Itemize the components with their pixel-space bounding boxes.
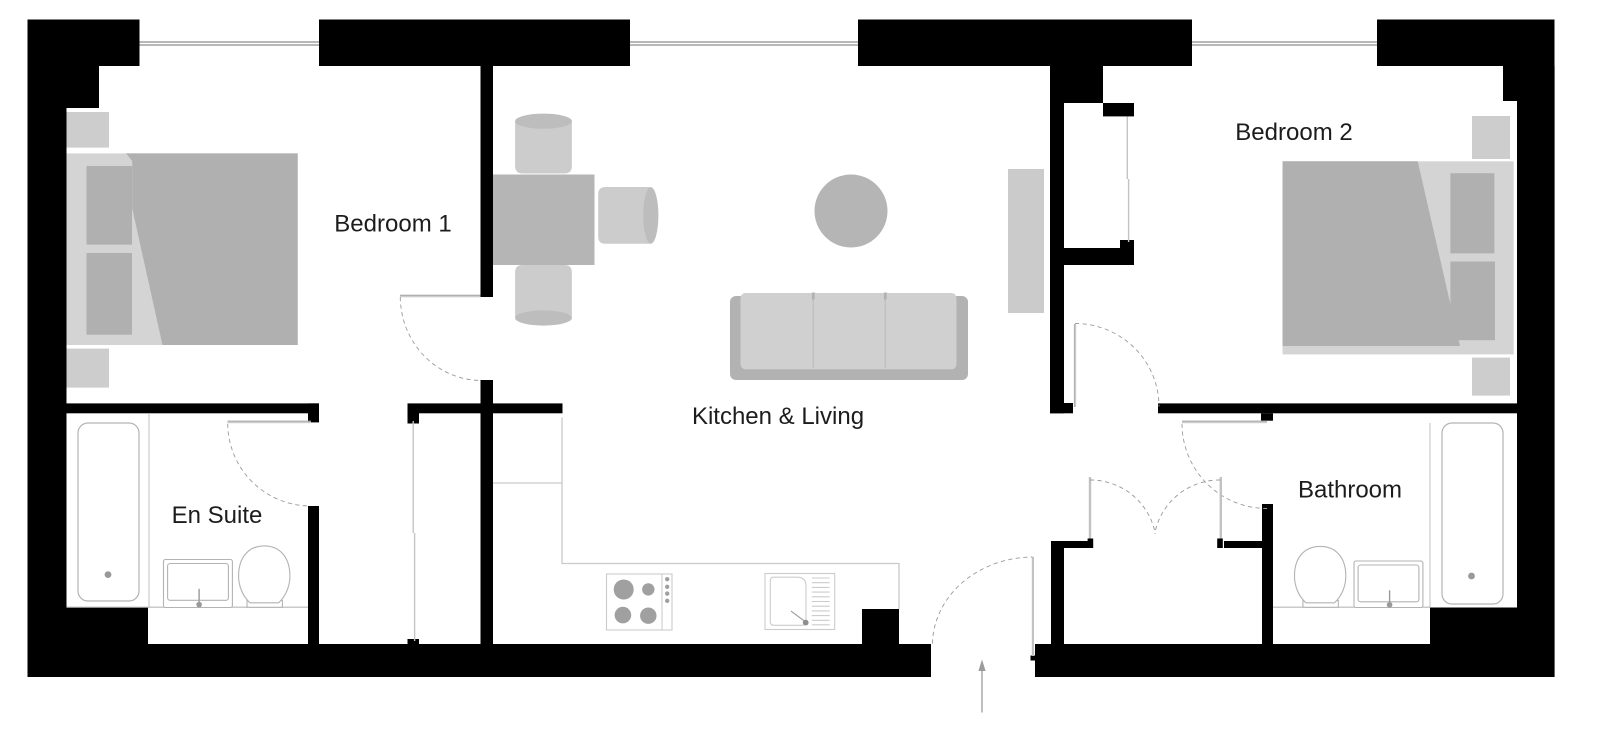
svg-text:Bathroom: Bathroom [1298,476,1402,503]
svg-text:Kitchen & Living: Kitchen & Living [692,403,864,430]
svg-text:Bedroom 2: Bedroom 2 [1235,119,1352,146]
svg-text:En Suite: En Suite [172,502,263,529]
svg-text:Bedroom 1: Bedroom 1 [334,211,451,238]
